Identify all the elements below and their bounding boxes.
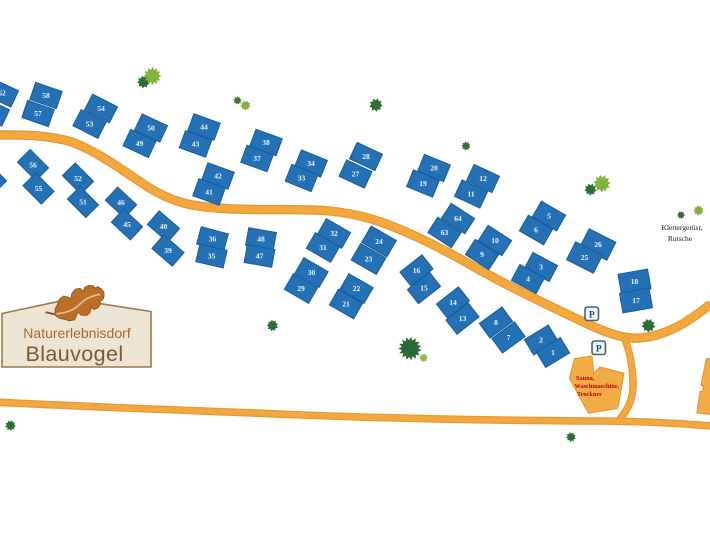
- svg-text:27: 27: [352, 170, 360, 179]
- svg-text:32: 32: [330, 229, 338, 238]
- svg-text:1: 1: [551, 348, 555, 357]
- svg-text:62: 62: [0, 89, 6, 98]
- svg-text:2: 2: [539, 336, 543, 345]
- svg-text:9: 9: [480, 250, 484, 259]
- svg-text:31: 31: [319, 243, 327, 252]
- svg-text:57: 57: [34, 109, 42, 118]
- svg-text:40: 40: [160, 222, 168, 231]
- svg-text:22: 22: [353, 284, 361, 293]
- svg-text:18: 18: [631, 277, 639, 286]
- svg-text:10: 10: [491, 236, 499, 245]
- svg-text:38: 38: [262, 138, 270, 147]
- svg-text:53: 53: [86, 120, 94, 129]
- svg-text:50: 50: [147, 124, 155, 133]
- svg-text:5: 5: [547, 212, 551, 221]
- svg-text:34: 34: [307, 159, 315, 168]
- svg-text:36: 36: [209, 235, 217, 244]
- svg-text:11: 11: [467, 190, 474, 199]
- svg-text:16: 16: [413, 266, 421, 275]
- svg-text:41: 41: [205, 188, 213, 197]
- svg-text:48: 48: [257, 235, 265, 244]
- svg-text:Blauvogel: Blauvogel: [25, 342, 123, 366]
- svg-text:19: 19: [419, 179, 427, 188]
- svg-text:17: 17: [632, 296, 640, 305]
- svg-text:64: 64: [454, 214, 462, 223]
- svg-text:6: 6: [534, 226, 538, 235]
- svg-text:13: 13: [459, 314, 467, 323]
- svg-text:20: 20: [430, 164, 438, 173]
- svg-text:44: 44: [200, 123, 208, 132]
- svg-text:21: 21: [342, 300, 350, 309]
- svg-text:Naturerlebnisdorf: Naturerlebnisdorf: [23, 325, 130, 341]
- svg-text:Rutsche: Rutsche: [668, 234, 693, 243]
- svg-text:30: 30: [308, 268, 316, 277]
- svg-text:39: 39: [164, 246, 172, 255]
- svg-text:24: 24: [375, 237, 383, 246]
- svg-text:26: 26: [594, 240, 602, 249]
- svg-text:25: 25: [581, 253, 589, 262]
- svg-text:35: 35: [208, 252, 216, 261]
- svg-text:33: 33: [298, 174, 306, 183]
- svg-text:Sauna,: Sauna,: [576, 375, 595, 382]
- svg-text:37: 37: [253, 154, 261, 163]
- svg-text:51: 51: [79, 198, 87, 207]
- svg-text:49: 49: [136, 139, 144, 148]
- svg-text:55: 55: [35, 184, 43, 193]
- svg-text:56: 56: [29, 161, 37, 170]
- svg-text:28: 28: [362, 152, 370, 161]
- svg-text:Trockner: Trockner: [577, 391, 602, 398]
- svg-text:15: 15: [420, 284, 428, 293]
- svg-text:63: 63: [441, 228, 449, 237]
- svg-text:43: 43: [192, 140, 200, 149]
- svg-text:8: 8: [494, 318, 498, 327]
- svg-text:58: 58: [42, 91, 50, 100]
- svg-text:46: 46: [117, 198, 125, 207]
- svg-text:47: 47: [256, 252, 264, 261]
- svg-text:P: P: [596, 345, 602, 355]
- svg-text:P: P: [589, 311, 595, 321]
- svg-text:52: 52: [74, 174, 82, 183]
- svg-text:42: 42: [214, 172, 222, 181]
- svg-text:12: 12: [479, 174, 487, 183]
- svg-text:7: 7: [507, 333, 511, 342]
- svg-text:Waschmaschine,: Waschmaschine,: [575, 383, 620, 390]
- svg-text:4: 4: [526, 275, 530, 284]
- svg-text:45: 45: [123, 220, 131, 229]
- svg-text:23: 23: [365, 255, 373, 264]
- svg-text:54: 54: [97, 104, 105, 113]
- svg-text:14: 14: [449, 298, 457, 307]
- svg-text:29: 29: [297, 284, 305, 293]
- svg-text:3: 3: [539, 263, 543, 272]
- svg-text:Klettergerüst,: Klettergerüst,: [662, 223, 703, 232]
